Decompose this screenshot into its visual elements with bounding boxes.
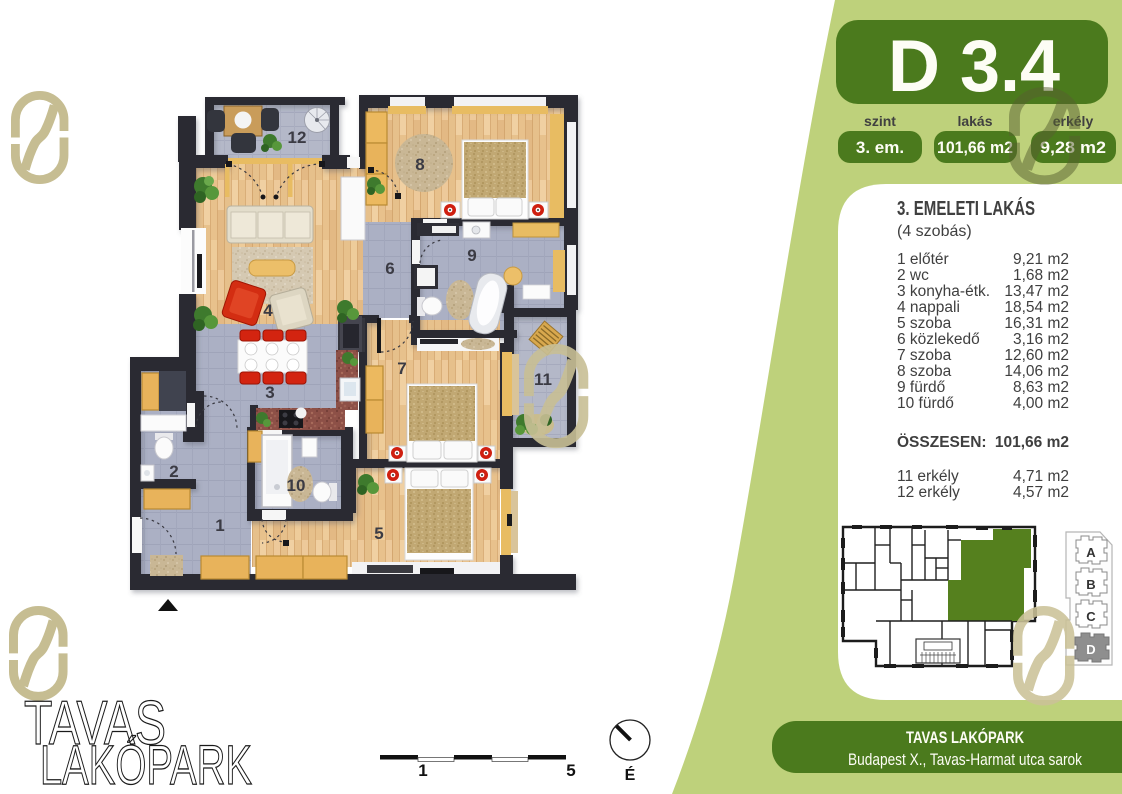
svg-text:12,60 m2: 12,60 m2 (1004, 347, 1069, 364)
svg-text:7: 7 (397, 359, 406, 378)
svg-text:1: 1 (215, 516, 224, 535)
svg-text:2: 2 (169, 462, 178, 481)
svg-text:É: É (625, 765, 636, 784)
svg-text:2 wc: 2 wc (897, 267, 929, 284)
svg-text:10: 10 (287, 476, 306, 495)
svg-text:8,63 m2: 8,63 m2 (1013, 379, 1069, 396)
svg-text:szint: szint (864, 113, 896, 129)
svg-text:101,66 m2: 101,66 m2 (937, 138, 1013, 157)
svg-text:12 erkély: 12 erkély (897, 484, 960, 501)
svg-text:12: 12 (288, 128, 307, 147)
svg-text:5 szoba: 5 szoba (897, 315, 952, 332)
svg-text:9,21 m2: 9,21 m2 (1013, 251, 1069, 268)
svg-text:8: 8 (415, 155, 424, 174)
svg-text:C: C (1086, 609, 1096, 624)
svg-text:5: 5 (566, 761, 575, 780)
svg-text:LAKÓPARK: LAKÓPARK (40, 733, 252, 794)
svg-text:3 konyha-étk.: 3 konyha-étk. (897, 283, 990, 300)
svg-text:4 nappali: 4 nappali (897, 299, 960, 316)
svg-text:10 fürdő: 10 fürdő (897, 395, 954, 412)
svg-text:4: 4 (263, 301, 273, 320)
svg-text:TAVAS LAKÓPARK: TAVAS LAKÓPARK (906, 728, 1025, 747)
svg-text:11 erkély: 11 erkély (897, 468, 959, 485)
svg-text:4,71 m2: 4,71 m2 (1013, 468, 1069, 485)
svg-text:(4 szobás): (4 szobás) (897, 223, 972, 240)
svg-text:8 szoba: 8 szoba (897, 363, 952, 380)
svg-text:1,68 m2: 1,68 m2 (1013, 267, 1069, 284)
svg-text:lakás: lakás (957, 113, 992, 129)
svg-text:16,31 m2: 16,31 m2 (1004, 315, 1069, 332)
svg-text:4,00 m2: 4,00 m2 (1013, 395, 1069, 412)
svg-text:14,06 m2: 14,06 m2 (1004, 363, 1069, 380)
svg-text:ÖSSZESEN:: ÖSSZESEN: (897, 434, 987, 451)
svg-text:18,54 m2: 18,54 m2 (1004, 299, 1069, 316)
svg-text:13,47 m2: 13,47 m2 (1004, 283, 1069, 300)
svg-text:3. EMELETI LAKÁS: 3. EMELETI LAKÁS (897, 197, 1035, 220)
svg-text:6 közlekedő: 6 közlekedő (897, 331, 980, 348)
svg-text:3: 3 (265, 383, 274, 402)
svg-text:A: A (1086, 545, 1096, 560)
svg-text:9: 9 (467, 246, 476, 265)
svg-text:1 előtér: 1 előtér (897, 251, 949, 268)
svg-text:101,66 m2: 101,66 m2 (995, 434, 1069, 451)
svg-text:9 fürdő: 9 fürdő (897, 379, 945, 396)
svg-text:D: D (1086, 642, 1095, 657)
svg-text:Budapest X., Tavas-Harmat utca: Budapest X., Tavas-Harmat utca sarok (848, 750, 1082, 769)
svg-text:11: 11 (534, 370, 552, 389)
svg-text:5: 5 (374, 524, 383, 543)
svg-text:4,57 m2: 4,57 m2 (1013, 484, 1069, 501)
svg-text:6: 6 (385, 259, 394, 278)
svg-text:3,16 m2: 3,16 m2 (1013, 331, 1069, 348)
svg-text:7 szoba: 7 szoba (897, 347, 952, 364)
svg-text:3. em.: 3. em. (856, 138, 904, 157)
svg-text:B: B (1086, 577, 1095, 592)
svg-text:1: 1 (418, 761, 427, 780)
